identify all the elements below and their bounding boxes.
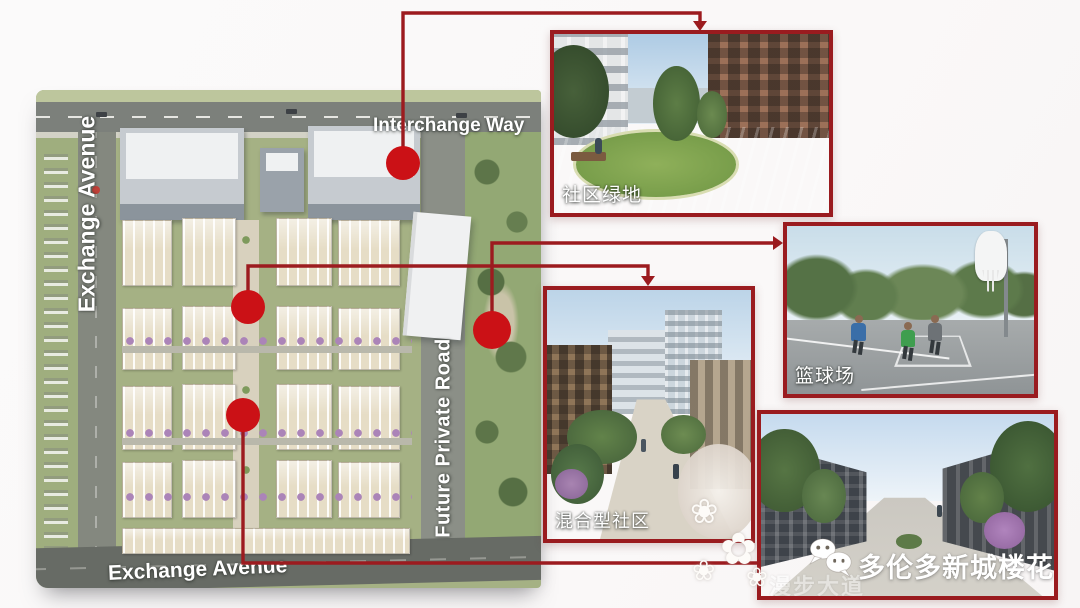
tower-roof (314, 131, 414, 177)
tree (697, 91, 727, 138)
wechat-logo-icon (807, 536, 857, 580)
blossom-tree (984, 512, 1025, 548)
person (641, 439, 646, 452)
street-label-future-private-road: Future Private Road (422, 352, 466, 524)
blossom-tree-row (122, 336, 412, 346)
tower-roof (266, 153, 298, 171)
townhouse-block (276, 460, 332, 518)
map-condo-tower-3 (308, 126, 420, 220)
inset-basketball-court: 篮球场 (783, 222, 1038, 398)
townhouse-block (122, 462, 172, 518)
blossom-tree (555, 469, 588, 499)
person (673, 464, 679, 479)
townhouse-block (182, 218, 236, 286)
person (595, 138, 602, 154)
bench (571, 152, 607, 161)
townhouse-block (276, 218, 332, 286)
blossom-icon: ❀ (692, 554, 715, 587)
townhouse-row (122, 528, 410, 554)
tower-roof (126, 133, 238, 179)
player (851, 323, 866, 341)
person (937, 505, 942, 517)
watermark-brand-text: 多伦多新城楼花 (858, 546, 1054, 585)
inset-community-green-space: 社区绿地 (550, 30, 833, 217)
map-condo-tower-2 (260, 148, 304, 212)
map-east-park-strip (465, 132, 541, 556)
map-condo-tower-1 (120, 128, 244, 220)
brick-building (708, 30, 833, 137)
inset-label-mixed-community: 混合型社区 (555, 507, 650, 533)
page: Exchange Avenue Interchange Way Future P… (0, 0, 1080, 608)
townhouse-block (338, 462, 400, 518)
map-white-building (403, 212, 472, 341)
townhouse-block (122, 220, 172, 286)
map-lane (122, 438, 412, 445)
townhouse-block (182, 460, 236, 518)
townhouse-block (338, 220, 400, 286)
inset-label-basketball: 篮球场 (795, 361, 855, 388)
blossom-tree-row (122, 492, 412, 502)
site-plan-map: Exchange Avenue Interchange Way Future P… (36, 90, 541, 588)
white-blossom-tree (678, 444, 755, 539)
street-label-exchange-avenue-west: Exchange Avenue (66, 128, 108, 300)
player (901, 330, 915, 347)
inset-mixed-community: 混合型社区 (543, 286, 755, 543)
car (286, 109, 297, 114)
arrowhead-mixed-community (641, 276, 655, 286)
blossom-tree-row (122, 428, 412, 438)
player (928, 323, 942, 341)
arrowhead-basketball (773, 236, 783, 250)
map-top-verge (36, 90, 541, 102)
inset-avenue: 多伦多新城楼花 漫步大道 (757, 410, 1058, 600)
inset-label-green-space: 社区绿地 (562, 180, 642, 207)
tree (653, 66, 700, 141)
map-lane (122, 346, 412, 353)
street-label-interchange-way: Interchange Way (373, 115, 524, 137)
